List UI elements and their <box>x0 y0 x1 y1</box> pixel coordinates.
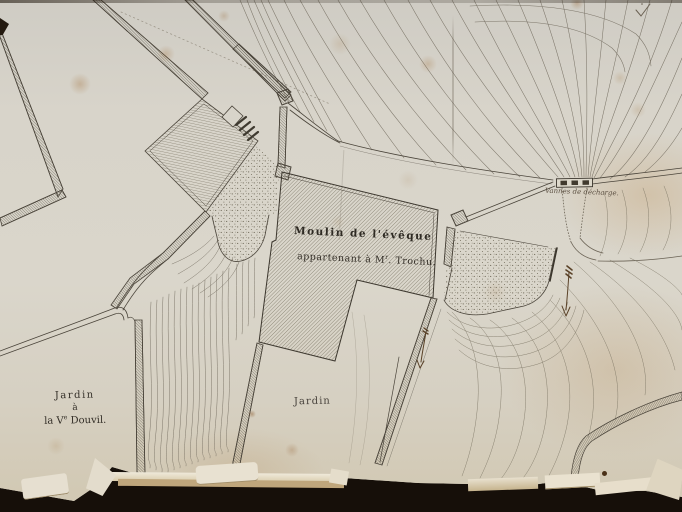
photographed-map: Moulin de l'évêque appartenant à Mr. Tro… <box>0 0 682 512</box>
garden-center-label: Jardin <box>294 396 331 408</box>
mill-road-south <box>375 298 441 466</box>
pencil-check-mark <box>636 3 650 16</box>
spillway-channel <box>562 188 682 261</box>
upper-roads <box>93 0 330 104</box>
millpond-flow-lines <box>240 0 682 179</box>
sluice-gate-symbol <box>556 178 592 187</box>
bottom-right-boundary <box>571 392 682 478</box>
left-enclosure-banks <box>0 28 66 226</box>
stream-right-bank <box>232 343 263 469</box>
garden-left-label: Jardin à la Ve Douvil. <box>30 389 121 427</box>
photo-top-edge <box>0 0 682 3</box>
dotted-survey-line <box>121 12 330 104</box>
stippled-area-2 <box>444 231 557 315</box>
southwest-road <box>0 211 210 476</box>
